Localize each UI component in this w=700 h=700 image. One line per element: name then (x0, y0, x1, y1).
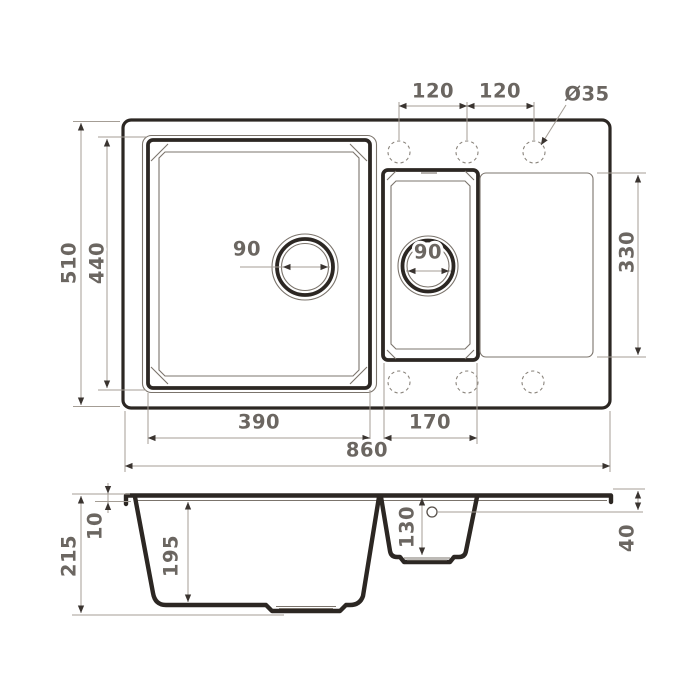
faucet-hole (388, 371, 410, 393)
dim-right-edge-height: 40 (613, 489, 645, 552)
overall-depth-label: 510 (58, 242, 81, 284)
dim-drainboard-depth: 330 (597, 173, 646, 357)
dim-faucet-spacing: 120 120 Ø35 (399, 80, 610, 146)
main-bowl-flange (143, 136, 377, 393)
main-bowl-depth-label: 440 (86, 242, 109, 284)
main-bowl-rim (148, 140, 370, 388)
main-bowl-width-label: 390 (238, 411, 280, 434)
sink-technical-drawing: 90 90 120 120 Ø3 (0, 0, 700, 700)
top-surface (126, 496, 611, 505)
faucet-holes (388, 141, 545, 393)
faucet-hole (456, 371, 478, 393)
faucet-spacing-right-label: 120 (479, 80, 521, 103)
drainboard-depth-label: 330 (616, 231, 639, 273)
faucet-diameter-label: Ø35 (564, 83, 609, 106)
dim-second-bowl-section-depth: 130 (396, 498, 423, 555)
faucet-hole (522, 371, 544, 393)
main-drain-diameter-label: 90 (233, 238, 261, 261)
faucet-spacing-left-label: 120 (412, 80, 454, 103)
dim-main-bowl-depth: 440 (86, 137, 147, 390)
second-bowl-rim (383, 170, 478, 360)
main-bowl-section-depth-label: 195 (160, 535, 183, 577)
main-drain: 90 (233, 234, 338, 300)
faucet-diameter-leader (541, 105, 566, 145)
faucet-hole (456, 141, 478, 163)
dim-rim-height: 10 (84, 483, 132, 540)
faucet-hole (388, 141, 410, 163)
top-view: 90 90 120 120 Ø3 (58, 80, 647, 473)
second-bowl-drain-recess (404, 558, 450, 560)
side-view: 215 10 195 130 40 (58, 483, 646, 615)
overall-height-label: 215 (58, 535, 81, 577)
rim-height-label: 10 (84, 512, 107, 540)
overflow-hole (427, 507, 437, 517)
second-bowl-section-depth-label: 130 (396, 506, 419, 548)
overall-width-label: 860 (346, 439, 388, 462)
drawing-canvas: 90 90 120 120 Ø3 (0, 0, 700, 700)
second-drain-diameter-label: 90 (414, 241, 442, 264)
second-bowl-width-label: 170 (409, 411, 451, 434)
second-drain: 90 (398, 236, 458, 296)
dim-main-bowl-width: 390 (148, 390, 370, 444)
dim-overall-width: 860 (125, 411, 610, 472)
dim-main-bowl-section-depth: 195 (160, 502, 189, 602)
right-edge-height-label: 40 (616, 524, 639, 552)
main-bowl-drain-recess (276, 607, 336, 609)
second-bowl-corner-chamfers (387, 171, 474, 359)
drainboard-outline (480, 173, 593, 357)
main-bowl-inner-bevel (159, 152, 359, 376)
dim-second-bowl-width: 170 (384, 363, 477, 444)
sink-outline (123, 120, 610, 408)
